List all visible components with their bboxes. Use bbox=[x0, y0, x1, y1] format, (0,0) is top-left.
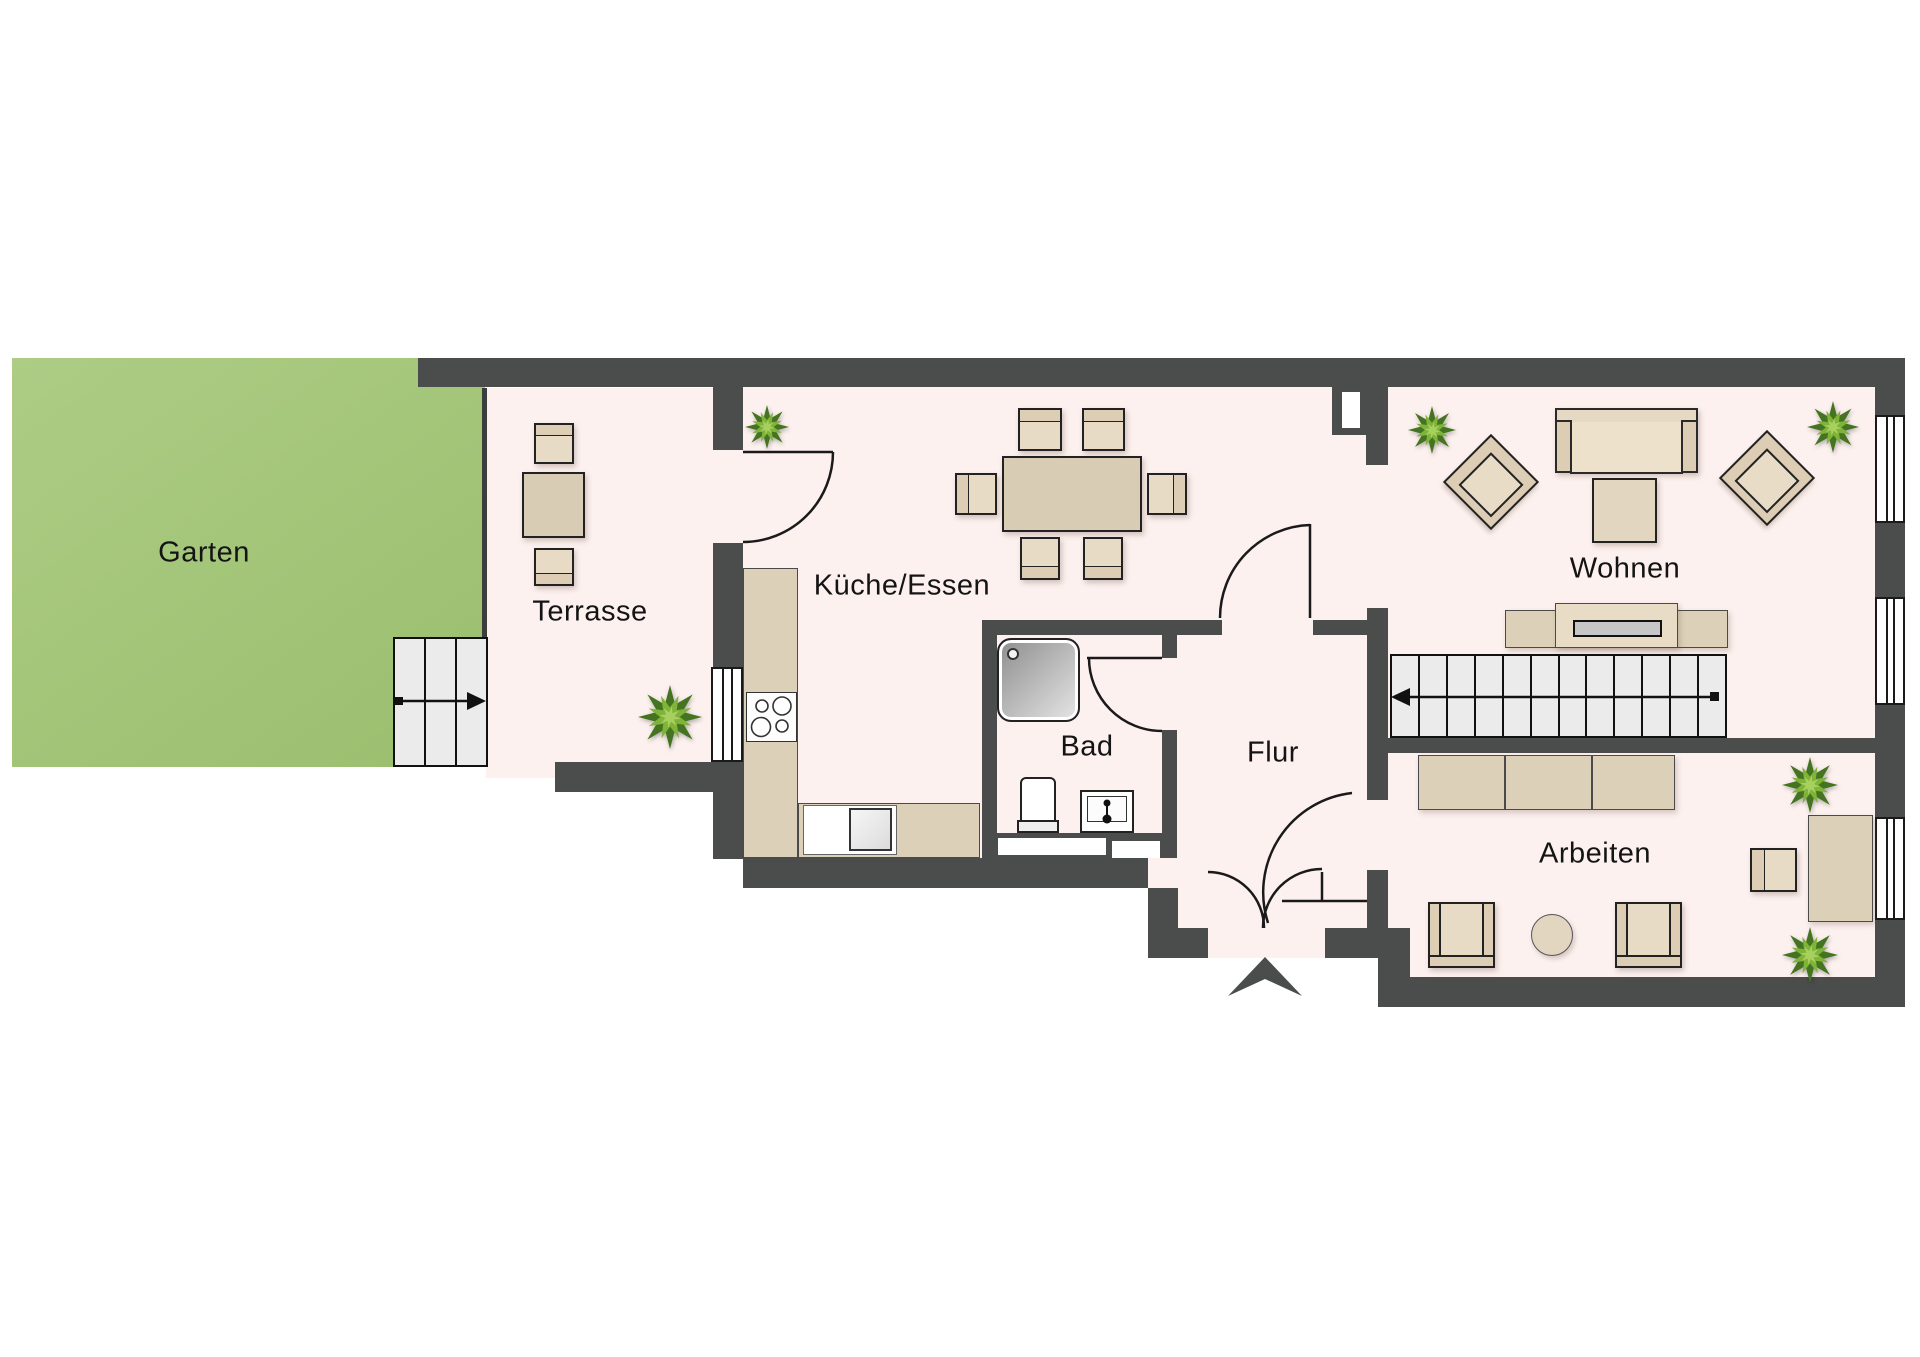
wall-living-office-divider bbox=[1388, 738, 1875, 753]
terrace-chair-south bbox=[534, 548, 574, 586]
stair-tread bbox=[1671, 656, 1699, 736]
terrace-floor-edge bbox=[486, 762, 556, 778]
office-cabinets bbox=[1418, 755, 1675, 810]
wall-top bbox=[418, 358, 1905, 387]
chimney-shaft bbox=[1342, 392, 1360, 428]
stair-tread bbox=[1448, 656, 1476, 736]
wall-entry-right-connector bbox=[1378, 928, 1410, 1007]
entrance-arrow-icon bbox=[1228, 957, 1302, 996]
exterior-steps bbox=[393, 637, 488, 767]
wall-bath-left bbox=[982, 622, 997, 843]
stair-tread bbox=[1476, 656, 1504, 736]
bath-bottom-recess bbox=[998, 838, 1106, 855]
room-label-arbeiten: Arbeiten bbox=[1539, 838, 1651, 871]
stair-tread bbox=[1643, 656, 1671, 736]
round-side-table bbox=[1531, 914, 1573, 956]
wall-terrace-kitchen-upper bbox=[713, 387, 743, 450]
step-tread bbox=[426, 639, 457, 765]
stair-tread bbox=[1504, 656, 1532, 736]
dining-chair bbox=[955, 473, 997, 515]
wall-kitchen-bottom bbox=[743, 858, 1148, 888]
window-living-1 bbox=[1875, 415, 1905, 523]
room-label-terrasse: Terrasse bbox=[532, 596, 647, 629]
terrace-table bbox=[522, 472, 585, 538]
wall-entry-left-foot bbox=[1148, 928, 1208, 958]
plant-icon bbox=[1782, 927, 1838, 983]
dining-chair bbox=[1082, 408, 1125, 451]
plant-icon bbox=[1408, 406, 1456, 454]
window-terrace-kitchen bbox=[711, 667, 743, 762]
room-label-bad: Bad bbox=[1060, 731, 1113, 764]
window-office bbox=[1875, 817, 1905, 920]
kitchen-sink-unit bbox=[803, 805, 897, 855]
sink-basin bbox=[849, 808, 892, 851]
step-tread bbox=[395, 639, 426, 765]
cooktop bbox=[746, 692, 797, 742]
bath-bottom-recess bbox=[1112, 841, 1160, 858]
wall-hall-right-upper bbox=[1367, 608, 1388, 800]
office-armchair bbox=[1615, 902, 1682, 968]
stair-tread bbox=[1587, 656, 1615, 736]
coffee-table bbox=[1592, 478, 1657, 543]
dining-table bbox=[1002, 456, 1142, 532]
desk-chair bbox=[1750, 848, 1797, 892]
terrace-floor bbox=[486, 388, 743, 762]
room-label-wohnen: Wohnen bbox=[1570, 553, 1681, 586]
toilet bbox=[1017, 777, 1059, 833]
room-label-kueche-essen: Küche/Essen bbox=[814, 570, 990, 603]
terrace-chair-north bbox=[534, 423, 574, 464]
dining-chair bbox=[1018, 408, 1062, 451]
plant-icon bbox=[1782, 757, 1838, 813]
dining-chair bbox=[1147, 473, 1187, 515]
stair-tread bbox=[1532, 656, 1560, 736]
garden-terrace-border bbox=[482, 388, 487, 637]
sofa bbox=[1555, 408, 1698, 473]
floor-plan: Garten Terrasse Küche/Essen Bad Flur Woh… bbox=[0, 0, 1920, 1357]
desk bbox=[1808, 815, 1873, 922]
stair-tread bbox=[1420, 656, 1448, 736]
dining-chair bbox=[1083, 537, 1123, 580]
plant-icon bbox=[745, 405, 789, 449]
plant-icon bbox=[638, 685, 702, 749]
stair-tread bbox=[1560, 656, 1588, 736]
tv-screen bbox=[1573, 620, 1662, 637]
room-label-garten: Garten bbox=[158, 537, 250, 570]
window-living-2 bbox=[1875, 597, 1905, 705]
office-armchair bbox=[1428, 902, 1495, 968]
chimney-stub bbox=[1366, 387, 1388, 465]
stair-tread bbox=[1699, 656, 1725, 736]
wall-hall-top-right bbox=[1313, 620, 1367, 635]
plant-icon bbox=[1807, 401, 1859, 453]
wall-bath-right-stub bbox=[1162, 635, 1177, 658]
dining-chair bbox=[1020, 537, 1060, 580]
wall-bath-right-lower bbox=[1162, 730, 1177, 833]
shower bbox=[997, 638, 1080, 722]
wall-terrace-kitchen-lower bbox=[713, 762, 743, 859]
wall-terrace-kitchen-mid bbox=[713, 543, 743, 667]
stair-tread bbox=[1392, 656, 1420, 736]
staircase bbox=[1390, 654, 1727, 738]
step-tread bbox=[457, 639, 486, 765]
room-label-flur: Flur bbox=[1247, 737, 1299, 770]
wall-terrace-bottom bbox=[555, 762, 713, 792]
bathroom-sink bbox=[1080, 790, 1134, 833]
stair-tread bbox=[1615, 656, 1643, 736]
wall-bath-top bbox=[982, 620, 1222, 635]
